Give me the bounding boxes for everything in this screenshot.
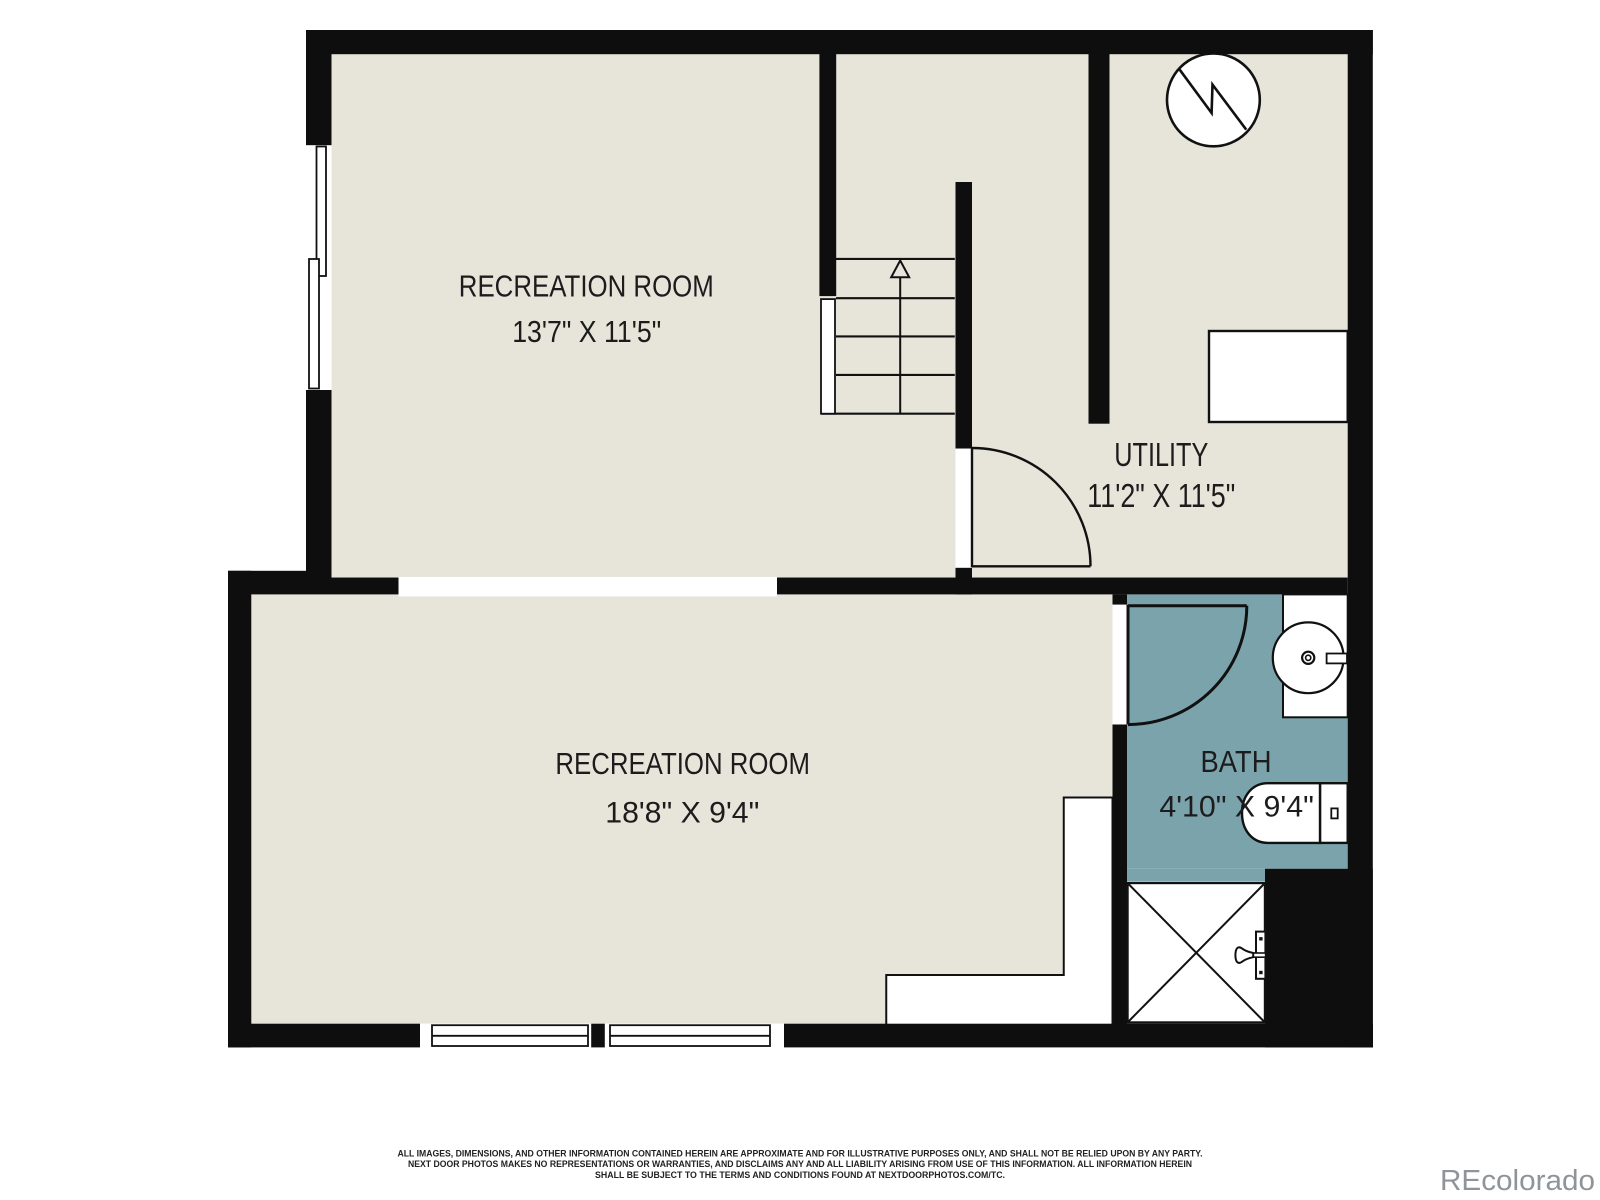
svg-text:11'2" X 11'5": 11'2" X 11'5" bbox=[1087, 477, 1235, 514]
svg-text:4'10" X 9'4": 4'10" X 9'4" bbox=[1159, 791, 1314, 824]
svg-text:18'8" X 9'4": 18'8" X 9'4" bbox=[605, 797, 759, 830]
svg-text:SHALL BE SUBJECT TO THE TERMS: SHALL BE SUBJECT TO THE TERMS AND CONDIT… bbox=[595, 1170, 1005, 1180]
svg-text:ALL IMAGES, DIMENSIONS, AND OT: ALL IMAGES, DIMENSIONS, AND OTHER INFORM… bbox=[398, 1149, 1203, 1159]
svg-text:BATH: BATH bbox=[1201, 744, 1272, 779]
svg-text:13'7" X 11'5": 13'7" X 11'5" bbox=[512, 314, 661, 349]
svg-text:REcolorado: REcolorado bbox=[1440, 1165, 1595, 1197]
svg-text:RECREATION ROOM: RECREATION ROOM bbox=[555, 746, 810, 781]
svg-text:RECREATION ROOM: RECREATION ROOM bbox=[459, 269, 714, 304]
svg-text:UTILITY: UTILITY bbox=[1114, 436, 1208, 473]
svg-text:NEXT DOOR PHOTOS MAKES NO REPR: NEXT DOOR PHOTOS MAKES NO REPRESENTATION… bbox=[408, 1159, 1192, 1169]
